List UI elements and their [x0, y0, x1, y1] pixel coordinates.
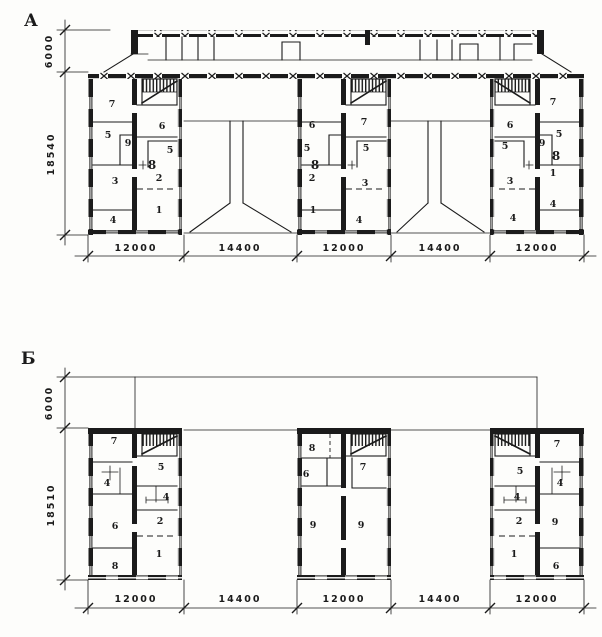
plan-b-gallery-outline — [135, 377, 537, 430]
dimension-text: 12000 — [322, 243, 365, 254]
dimension-text: 12000 — [515, 243, 558, 254]
plan-a-courtyard-right — [391, 121, 490, 233]
room-number: 9 — [552, 517, 559, 528]
plan-a-courtyard-left — [184, 121, 297, 233]
room-number: 5 — [105, 130, 112, 141]
plan-b-section-left — [88, 428, 182, 580]
plan-a-section-right — [490, 79, 584, 235]
room-number: 7 — [554, 439, 561, 450]
room-number: 6 — [507, 120, 514, 131]
room-number: 7 — [109, 99, 116, 110]
room-number: 7 — [550, 97, 557, 108]
room-number: 6 — [112, 521, 119, 532]
room-number: 5 — [556, 129, 563, 140]
dimension-text: 14400 — [418, 243, 461, 254]
room-number: 1 — [156, 549, 163, 560]
room-number: 5 — [304, 143, 311, 154]
dimension-text: 18540 — [46, 132, 57, 175]
room-number: 2 — [309, 173, 316, 184]
room-number: 4 — [510, 213, 517, 224]
room-number: 7 — [111, 436, 118, 447]
plan-b-horizontal-dimension: 1200014400120001440012000 — [75, 580, 596, 614]
plan-b-section-right — [490, 428, 584, 580]
room-number: 5 — [158, 462, 165, 473]
plan-b-letter: Б — [21, 349, 36, 369]
room-number: 5 — [517, 466, 524, 477]
room-number: 1 — [550, 168, 557, 179]
room-number: 4 — [557, 478, 564, 489]
plan-a-top-wing — [104, 30, 571, 72]
room-number: 2 — [156, 173, 163, 184]
room-number: 8 — [311, 158, 319, 172]
room-number: 4 — [104, 478, 111, 489]
plan-b: Б 600018510 1200014400120001440012000 — [21, 349, 596, 614]
room-number: 3 — [112, 176, 119, 187]
drawing-sheet: А — [0, 0, 602, 637]
floor-plan-drawing: А — [0, 0, 602, 637]
dimension-text: 12000 — [515, 594, 558, 605]
room-number: 6 — [159, 121, 166, 132]
plan-a-horizontal-dimension: 1200014400120001440012000 — [75, 235, 596, 262]
room-number: 5 — [363, 143, 370, 154]
room-number: 5 — [502, 141, 509, 152]
room-number: 4 — [356, 215, 363, 226]
room-number: 4 — [514, 492, 521, 503]
room-number: 4 — [163, 492, 170, 503]
room-number: 5 — [167, 145, 174, 156]
room-number: 8 — [309, 443, 316, 454]
plan-a-vertical-dimension: 600018540 — [44, 20, 110, 245]
room-number: 3 — [507, 176, 514, 187]
room-number: 6 — [553, 561, 560, 572]
dimension-text: 12000 — [114, 594, 157, 605]
plan-a: А — [24, 11, 596, 262]
room-number: 8 — [148, 158, 156, 172]
room-number: 7 — [361, 117, 368, 128]
room-number: 8 — [112, 561, 119, 572]
room-number: 9 — [358, 520, 365, 531]
dimension-text: 14400 — [418, 594, 461, 605]
room-number: 1 — [310, 205, 317, 216]
room-number: 8 — [552, 149, 560, 163]
plan-a-section-left — [88, 79, 182, 235]
dimension-text: 14400 — [218, 243, 261, 254]
room-number: 2 — [157, 516, 164, 527]
room-number: 1 — [156, 205, 163, 216]
plan-a-front-wall — [88, 72, 584, 79]
dimension-text: 14400 — [218, 594, 261, 605]
dimension-text: 18510 — [46, 483, 57, 526]
dimension-text: 6000 — [44, 386, 55, 420]
room-number: 6 — [303, 469, 310, 480]
room-number: 4 — [110, 215, 117, 226]
dimension-text: 12000 — [322, 594, 365, 605]
room-number: 9 — [125, 138, 132, 149]
dimension-text: 6000 — [44, 34, 55, 68]
room-number: 9 — [539, 138, 546, 149]
room-number: 2 — [516, 516, 523, 527]
room-number: 4 — [550, 199, 557, 210]
room-number: 7 — [360, 462, 367, 473]
dimension-text: 12000 — [114, 243, 157, 254]
room-number: 6 — [309, 120, 316, 131]
room-number: 9 — [310, 520, 317, 531]
room-number: 1 — [511, 549, 518, 560]
plan-a-letter: А — [24, 11, 38, 31]
room-number: 3 — [362, 178, 369, 189]
